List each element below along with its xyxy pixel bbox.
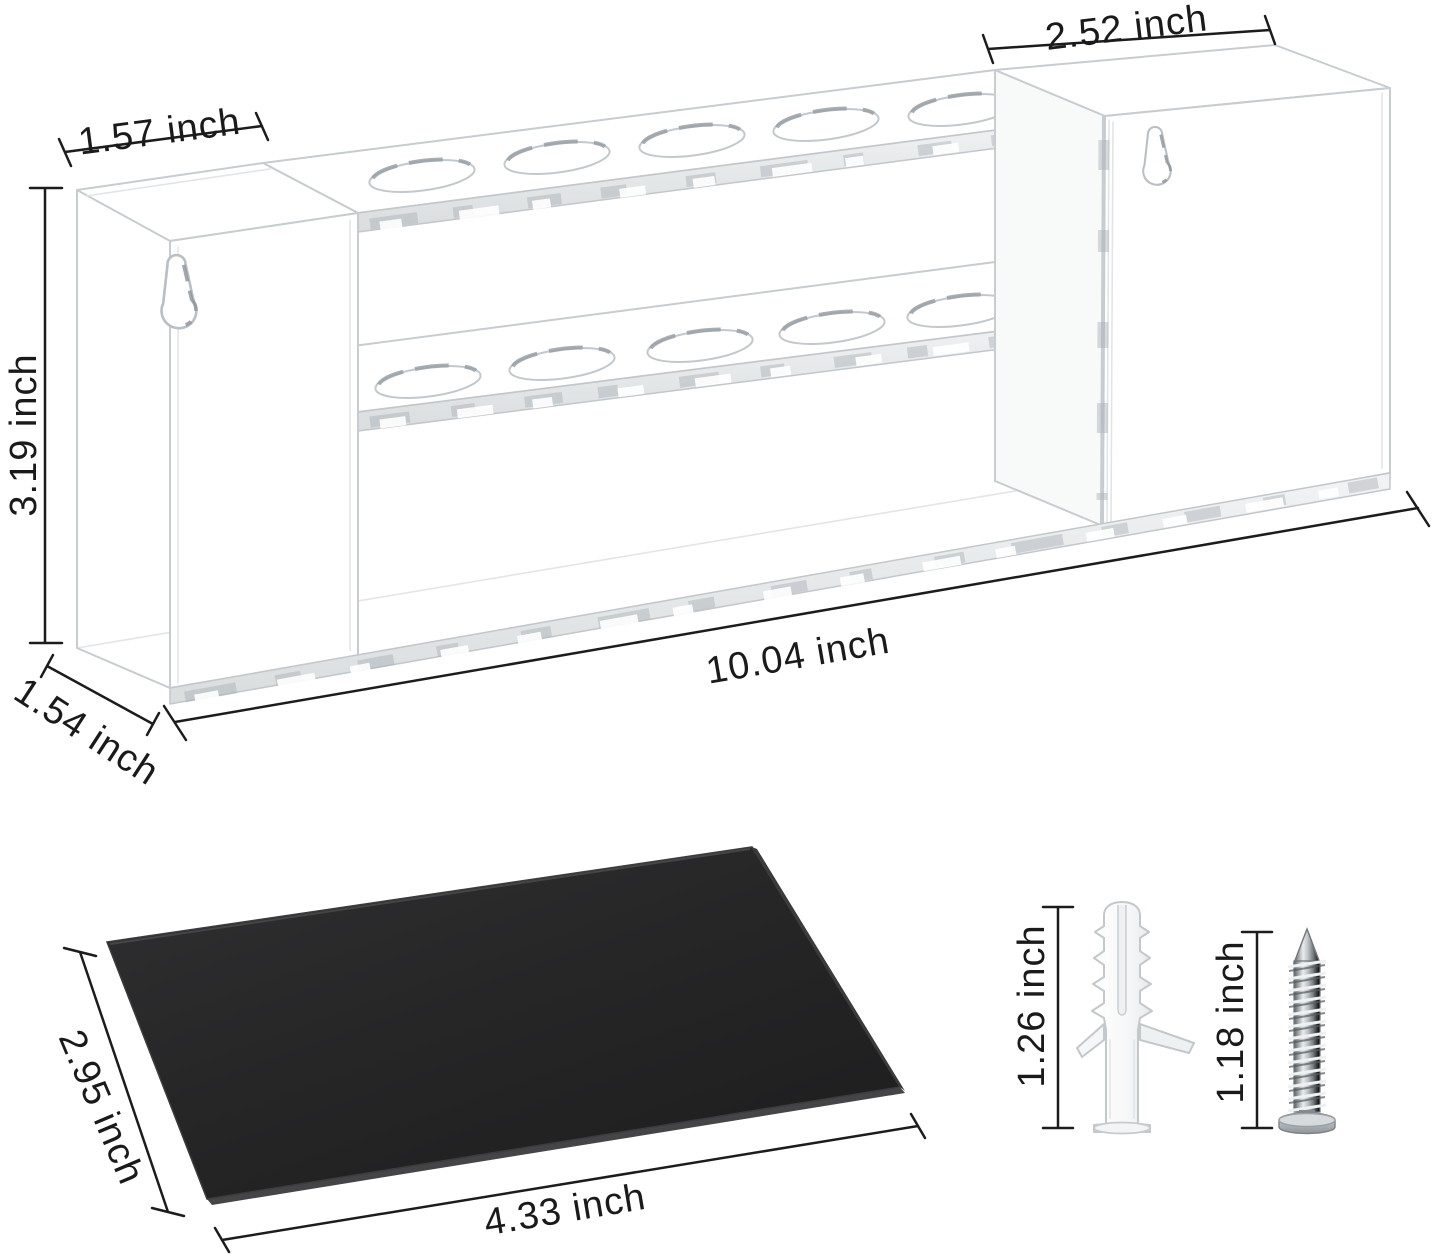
dim-label-left-section-width: 1.57 inch (76, 101, 243, 164)
product-diagram: 1.57 inch 2.52 inch 3.19 inch 1.54 inch … (0, 0, 1445, 1256)
dim-label-total-width: 10.04 inch (703, 620, 893, 693)
dim-label-height: 3.19 inch (3, 353, 45, 516)
dim-label-right-section-width: 2.52 inch (1043, 0, 1210, 59)
rubber-mat (107, 847, 905, 1205)
diagram-canvas: 1.57 inch 2.52 inch 3.19 inch 1.54 inch … (0, 0, 1445, 1256)
acrylic-holder-drawing (77, 45, 1390, 704)
dimension-height: 3.19 inch (3, 188, 62, 643)
middle-shelf (353, 262, 1103, 431)
dim-label-screw-length: 1.18 inch (1210, 940, 1252, 1103)
wall-anchor (1077, 902, 1194, 1134)
left-cup-box (77, 163, 358, 688)
top-shelf (263, 70, 1105, 232)
dim-label-mat-width: 4.33 inch (481, 1176, 649, 1244)
left-box-back-edge (77, 190, 170, 688)
dimension-screw-length: 1.18 inch (1210, 932, 1272, 1128)
mounting-screw (1279, 929, 1335, 1134)
dim-label-mat-depth: 2.95 inch (50, 1024, 152, 1191)
dimension-anchor-length: 1.26 inch (1011, 907, 1073, 1128)
dimension-left-section-width: 1.57 inch (59, 101, 268, 166)
right-cup-box (995, 45, 1390, 526)
dim-label-anchor-length: 1.26 inch (1011, 924, 1053, 1087)
